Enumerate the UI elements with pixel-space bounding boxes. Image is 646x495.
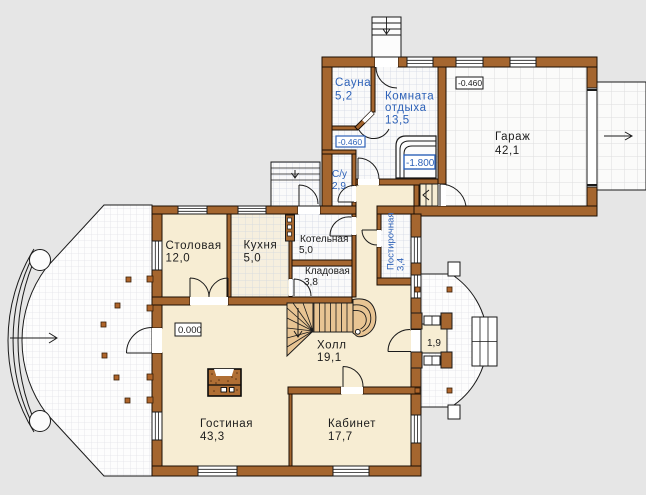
svg-text:42,1: 42,1 [495, 145, 520, 157]
svg-text:Гараж: Гараж [495, 131, 530, 143]
svg-text:Гостиная: Гостиная [200, 418, 253, 430]
svg-text:С/у: С/у [332, 169, 347, 180]
svg-text:2,9: 2,9 [332, 181, 346, 192]
svg-text:-1.800: -1.800 [406, 158, 435, 169]
svg-text:17,7: 17,7 [328, 431, 353, 443]
svg-text:43,3: 43,3 [200, 431, 225, 443]
svg-text:Комната: Комната [385, 91, 434, 103]
svg-text:3,4: 3,4 [396, 258, 407, 271]
svg-text:Кладовая: Кладовая [305, 266, 350, 277]
svg-text:Кухня: Кухня [244, 240, 278, 252]
svg-text:5,0: 5,0 [244, 253, 262, 265]
svg-text:19,1: 19,1 [317, 352, 342, 364]
svg-text:отдыха: отдыха [385, 102, 427, 114]
svg-text:Холл: Холл [317, 340, 347, 352]
svg-text:Сауна: Сауна [335, 77, 371, 89]
svg-text:-0.460: -0.460 [458, 78, 482, 88]
svg-text:-0.460: -0.460 [338, 137, 362, 147]
svg-text:5,0: 5,0 [299, 245, 313, 256]
svg-text:Столовая: Столовая [166, 240, 222, 252]
svg-text:Кабинет: Кабинет [328, 418, 376, 430]
svg-text:1,9: 1,9 [427, 338, 441, 349]
svg-text:Котельная: Котельная [300, 234, 348, 245]
svg-text:3,8: 3,8 [304, 277, 318, 288]
svg-text:12,0: 12,0 [166, 253, 191, 265]
svg-text:5,2: 5,2 [335, 91, 353, 103]
svg-text:13,5: 13,5 [385, 115, 410, 127]
svg-text:0.000: 0.000 [178, 325, 202, 336]
